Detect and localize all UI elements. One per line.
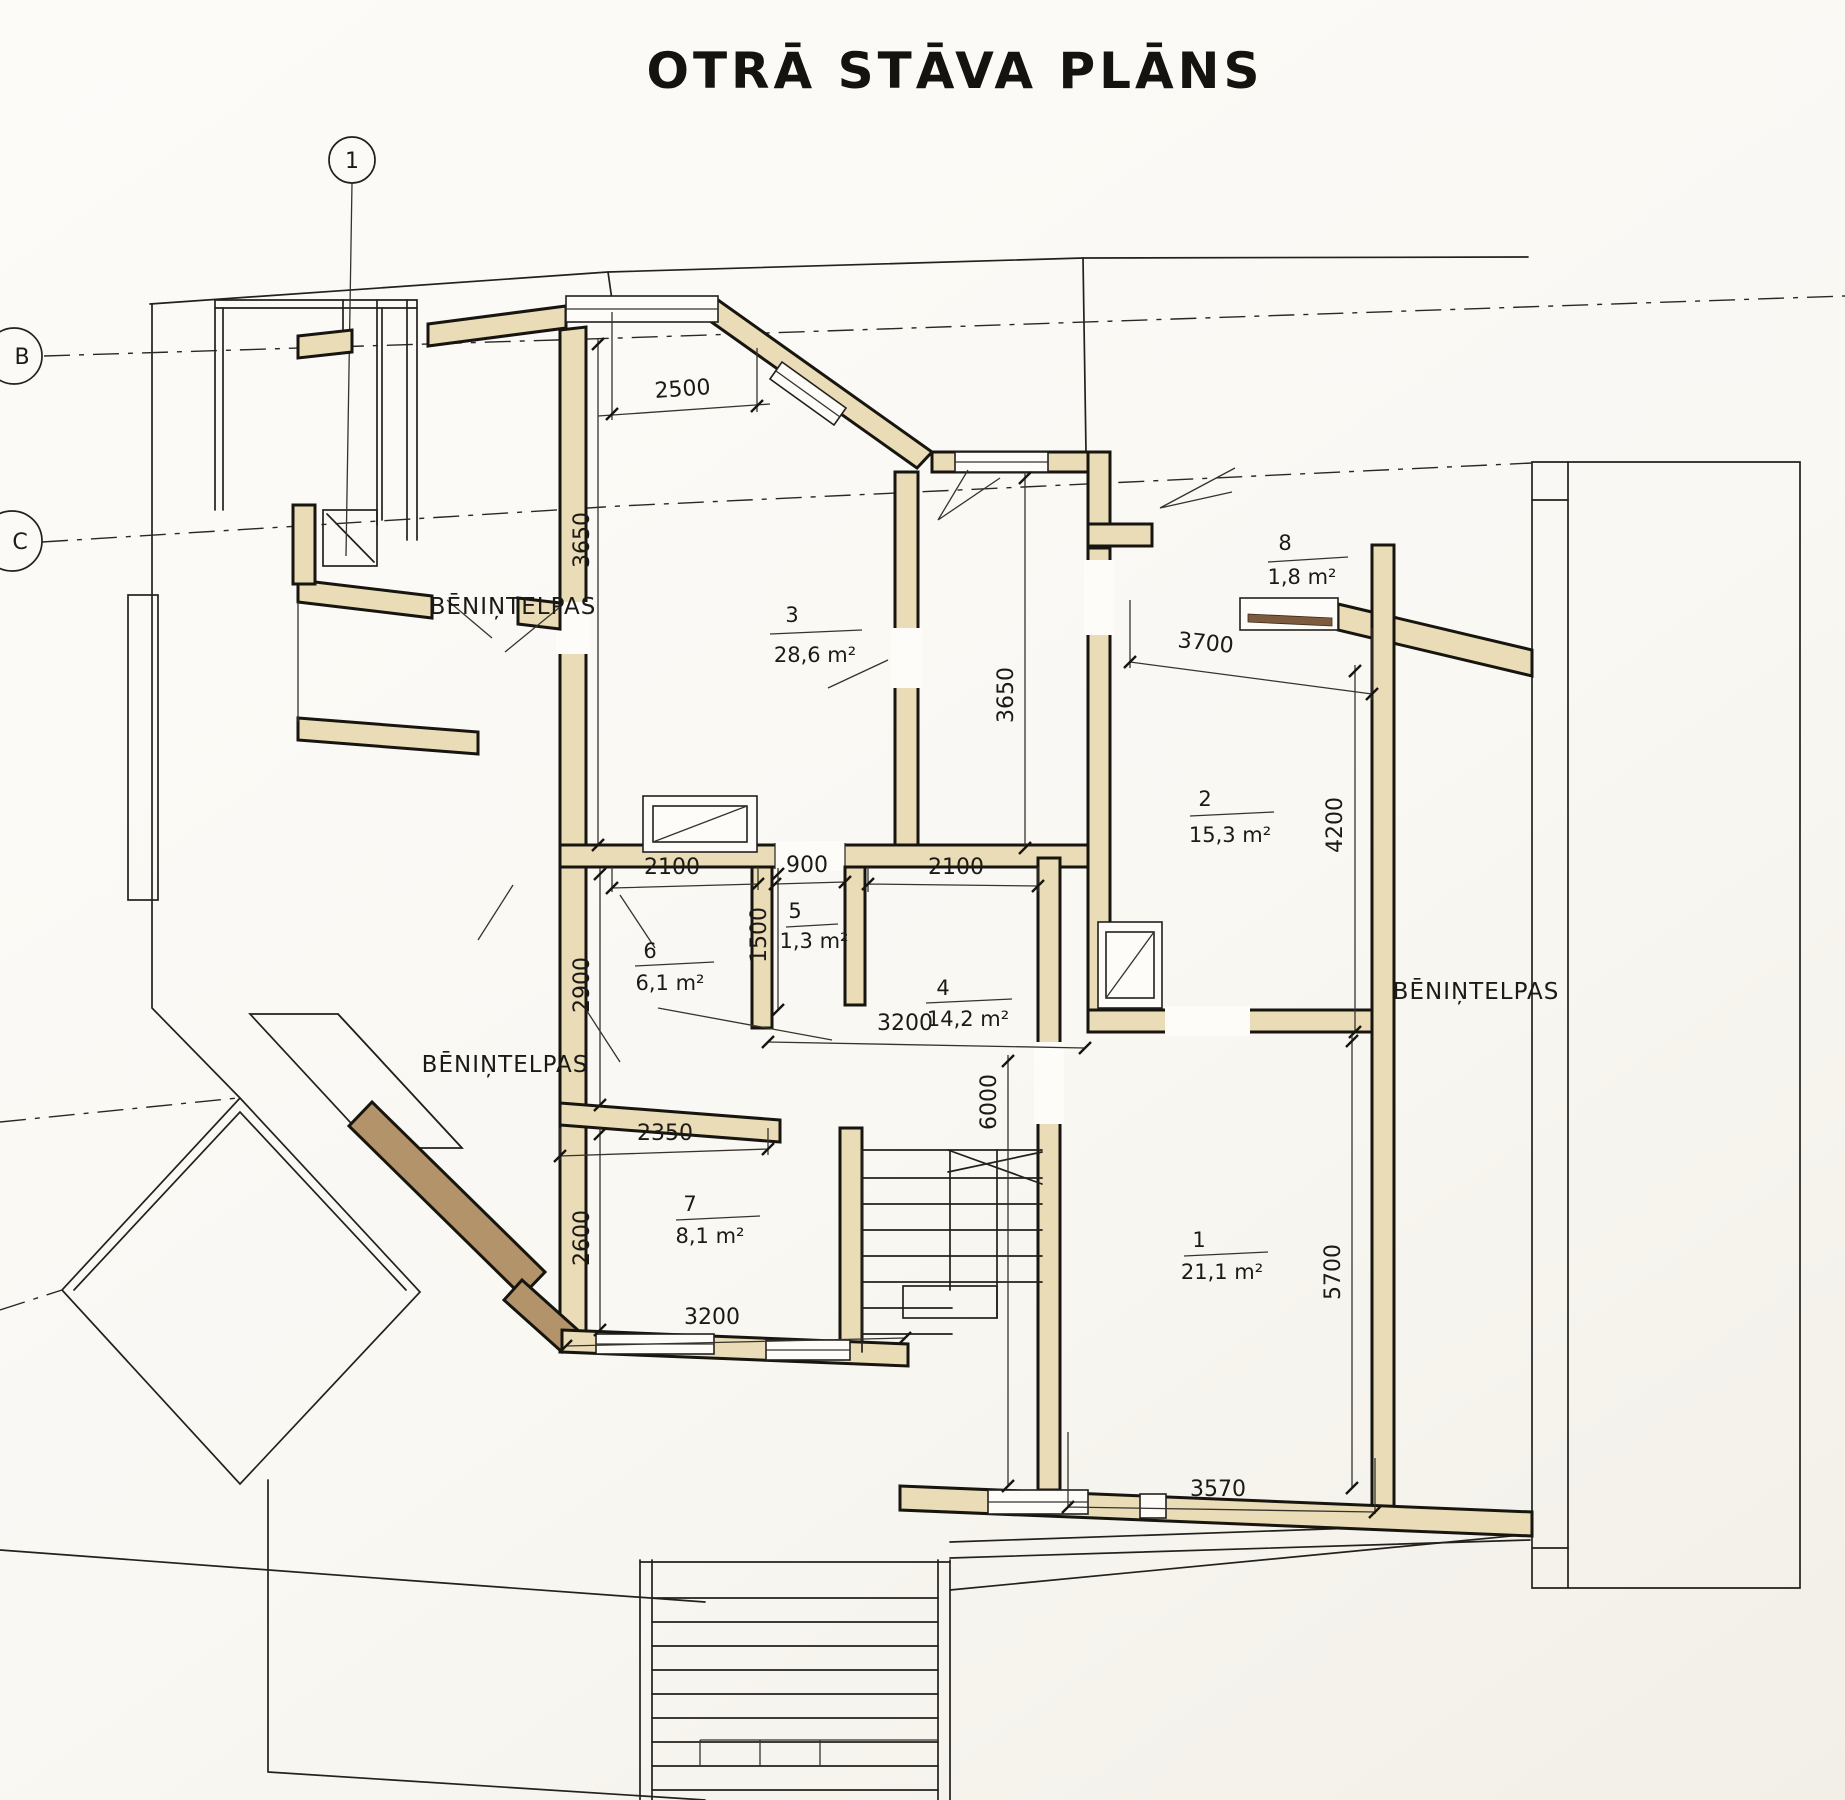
dim-2350: 2350 [637, 1121, 693, 1146]
room4-number: 4 [936, 976, 949, 1000]
room-label-3: 3 28,6 m² [770, 603, 862, 667]
wall-diagonal-topright [1338, 604, 1532, 676]
attic-label-top-left: BĒNIŅTELPAS [430, 593, 597, 620]
roof-window-room3 [643, 796, 757, 852]
attic-label-mid-left: BĒNIŅTELPAS [422, 1051, 589, 1078]
room6-number: 6 [643, 939, 656, 963]
axis-label-b: B [14, 345, 29, 370]
wall-diagonal-top [703, 300, 932, 468]
dim-3650-left: 3650 [570, 512, 595, 568]
room-label-1: 1 21,1 m² [1181, 1228, 1268, 1284]
room7-area: 8,1 m² [676, 1224, 745, 1248]
floor-plan-sheet: 1 B C 2500 3650 3650 3700 4200 2100 900 [0, 0, 1845, 1800]
dim-3570: 3570 [1190, 1477, 1246, 1502]
window-room8 [1240, 598, 1338, 630]
room4-area: 14,2 m² [927, 1007, 1009, 1031]
dim-5700: 5700 [1321, 1244, 1346, 1300]
room-label-2: 2 15,3 m² [1189, 787, 1274, 847]
room-label-6: 6 6,1 m² [635, 939, 714, 995]
room8-area: 1,8 m² [1268, 565, 1337, 589]
window-bottom-2 [1140, 1494, 1166, 1518]
dim-2500: 2500 [654, 375, 712, 404]
dim-2900: 2900 [570, 957, 595, 1013]
room-label-8: 8 1,8 m² [1268, 531, 1348, 589]
window-topright [955, 452, 1048, 472]
dim-3650-mid: 3650 [994, 667, 1019, 723]
dim-2600: 2600 [570, 1210, 595, 1266]
room6-area: 6,1 m² [636, 971, 705, 995]
page-title: OTRĀ STĀVA PLĀNS [646, 42, 1263, 100]
dim-900: 900 [786, 853, 828, 878]
room2-area: 15,3 m² [1189, 823, 1271, 847]
window-top-2500 [566, 296, 718, 322]
wall-stair-right [1038, 858, 1060, 1490]
attic-label-right: BĒNIŅTELPAS [1393, 978, 1560, 1005]
dim-4200: 4200 [1323, 797, 1348, 853]
door-room6 [658, 1008, 832, 1040]
room7-number: 7 [683, 1192, 696, 1216]
roof-window-room2 [1098, 922, 1162, 1008]
room8-number: 8 [1278, 531, 1291, 555]
staircase-internal [862, 1150, 1042, 1352]
leader-room8b [938, 470, 1000, 520]
dim-2100-right: 2100 [928, 855, 984, 880]
dim-3200-bottom: 3200 [684, 1305, 740, 1330]
room5-area: 1,3 m² [780, 929, 849, 953]
room-label-7: 7 8,1 m² [676, 1192, 760, 1248]
room1-area: 21,1 m² [1181, 1260, 1263, 1284]
wall-left-main [560, 327, 586, 1352]
room-label-5: 5 1,3 m² [780, 899, 849, 953]
axis-label-c: C [12, 530, 27, 555]
leader-room8 [1160, 468, 1235, 508]
room-label-4: 4 14,2 m² [926, 976, 1012, 1031]
door-attic-mid [478, 885, 620, 1062]
window-room7-b [766, 1340, 850, 1360]
room5-number: 5 [788, 899, 801, 923]
room-labels: 3 28,6 m² 8 1,8 m² 2 15,3 m² 5 1,3 m² 6 … [635, 531, 1348, 1284]
room1-number: 1 [1192, 1228, 1205, 1252]
axis-1-leader-line [346, 183, 352, 556]
dim-6000: 6000 [977, 1074, 1002, 1130]
room3-area: 28,6 m² [774, 643, 856, 667]
dim-2100-left: 2100 [644, 855, 700, 880]
walls [293, 300, 1532, 1536]
room2-number: 2 [1198, 787, 1211, 811]
room3-number: 3 [785, 603, 798, 627]
floor-plan-drawing: 1 B C 2500 3650 3650 3700 4200 2100 900 [0, 0, 1845, 1800]
dim-1500: 1500 [747, 907, 772, 963]
axis-label-1: 1 [345, 149, 359, 174]
dim-3700: 3700 [1177, 628, 1235, 659]
dim-3200-mid: 3200 [877, 1011, 933, 1036]
staircase-external [640, 1560, 950, 1800]
